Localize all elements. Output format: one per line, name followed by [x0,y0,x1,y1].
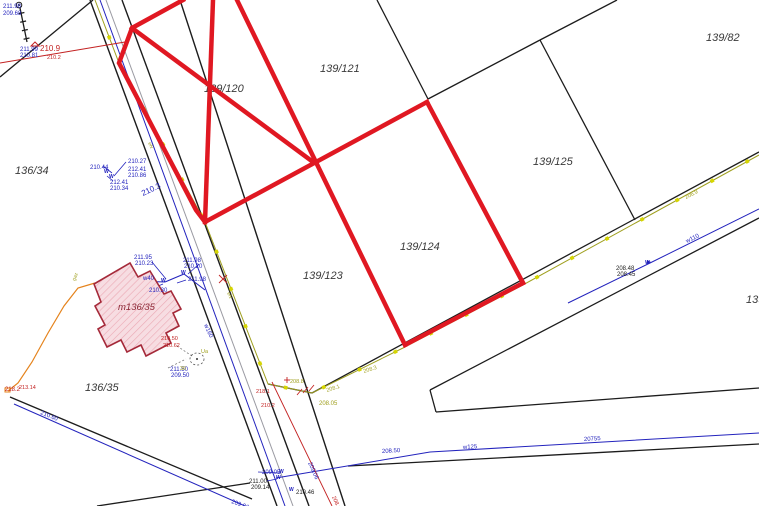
elevation-label: 210.20 [184,264,203,270]
elevation-label: 36 [180,366,186,372]
parcel-label-139-123: 139/123 [303,270,344,282]
en-line-tick [605,236,610,241]
parcel-label-136-34: 136/34 [15,165,49,177]
elevation-label: gaz [71,272,80,282]
elevation-label: 210.30 [149,288,168,294]
elevation-label: 210.3 [140,181,162,198]
elevation-label: 210.50 [161,336,178,342]
ua-symbol-dot [196,358,198,360]
water-valve-icon: W [289,487,294,493]
highlight-parcel-outline [405,283,523,345]
elevation-label: 209.50 [171,373,190,379]
water-valve-icon: W [645,260,650,266]
elevation-label: 20755 [584,436,602,443]
elevation-label: 210.86 [128,173,147,179]
en-line-tick [675,198,680,203]
elevation-label: 208.0 [330,495,341,506]
elevation-label: 210.23 [135,261,154,267]
elevation-label: 210.62 [163,343,180,349]
water-valve-icon: W [161,278,166,284]
elevation-label: 210.9 [40,44,61,53]
boundary-line [540,0,617,40]
elevation-label: 210.60 [39,410,59,423]
elevation-label: eN [146,141,154,150]
elevation-label: w110 [684,233,701,245]
cadastral-map-svg: m136/35WWWWWWWW211.98209.68211.99210.812… [0,0,759,506]
parcel-label-139-124: 139/124 [400,241,440,253]
parcel-label-139: 139/ [746,294,759,306]
parcel-label-139-121: 139/121 [320,63,360,75]
road-line [90,0,277,506]
en-line-tick [393,349,398,354]
boundary-line [540,40,635,220]
elevation-label: 210.46 [296,490,315,496]
red-survey-mark [309,385,314,391]
highlight-parcel-outline [205,102,427,222]
elevation-label: w125 [462,444,478,451]
boundary-line [24,38,30,39]
en-line-tick [284,385,288,389]
elevation-label: 210.44 [90,165,109,171]
en-line-tick [570,255,575,260]
elevation-label: 210.27 [128,159,147,165]
gas-line [8,283,95,391]
elevation-label: w40 [142,276,155,282]
en-line-tick [535,275,540,280]
benchmark-triangle-icon [31,42,39,46]
parcel-label-136-35: 136/35 [85,382,120,394]
highlight-parcel-outline [237,0,405,345]
elevation-label: 208.05 [319,401,338,407]
cadastral-map-canvas: m136/35WWWWWWWW211.98209.68211.99210.812… [0,0,759,506]
red-survey-mark [0,42,125,63]
elevation-label: 208.8 [290,379,304,385]
elevation-label: 210.2 [261,403,275,409]
elevation-label: 208.50 [382,448,401,455]
elevation-label: 209.96 [230,499,250,506]
highlight-parcel-outline [205,0,213,222]
boundary-line [22,30,28,31]
en-line-tick [710,178,715,183]
elevation-label: 210.2 [47,55,61,61]
water-line-w125 [276,433,759,478]
elevation-label: 211.98 [188,277,207,283]
road-line [180,0,345,506]
parcel-label-139-125: 139/125 [533,156,574,168]
boundary-line [20,21,26,22]
elevation-label: 209.05 [262,470,281,476]
boundary-line [430,390,436,412]
en-line-tick [107,35,112,40]
elevation-label: 210.81 [20,53,39,59]
building-label: m136/35 [118,302,156,313]
water-line-w110 [568,209,759,303]
elevation-label: w160 [202,322,214,339]
elevation-label: 209.14 [251,485,270,491]
boundary-line [312,152,759,393]
water-valve-icon: W [181,270,186,276]
water-leader [177,280,186,283]
elevation-label: 213.14 [19,385,36,391]
highlight-parcel-outline [427,102,523,283]
en-line-tick [640,217,645,222]
parcel-label-139-82: 139/82 [706,32,740,44]
elevation-label: 218.1 [256,389,270,395]
boundary-line [97,483,250,506]
elevation-label: 209.68 [3,11,22,17]
boundary-line [377,0,428,99]
water-leader [114,162,126,176]
elevation-label: 210.34 [110,186,129,192]
elevation-label: 211.98 [3,4,22,10]
boundary-line [428,40,540,99]
elevation-label: Ua [201,349,209,355]
en-line-tick [258,361,263,366]
boundary-line [436,388,759,412]
elevation-label: 208.45 [617,272,636,278]
